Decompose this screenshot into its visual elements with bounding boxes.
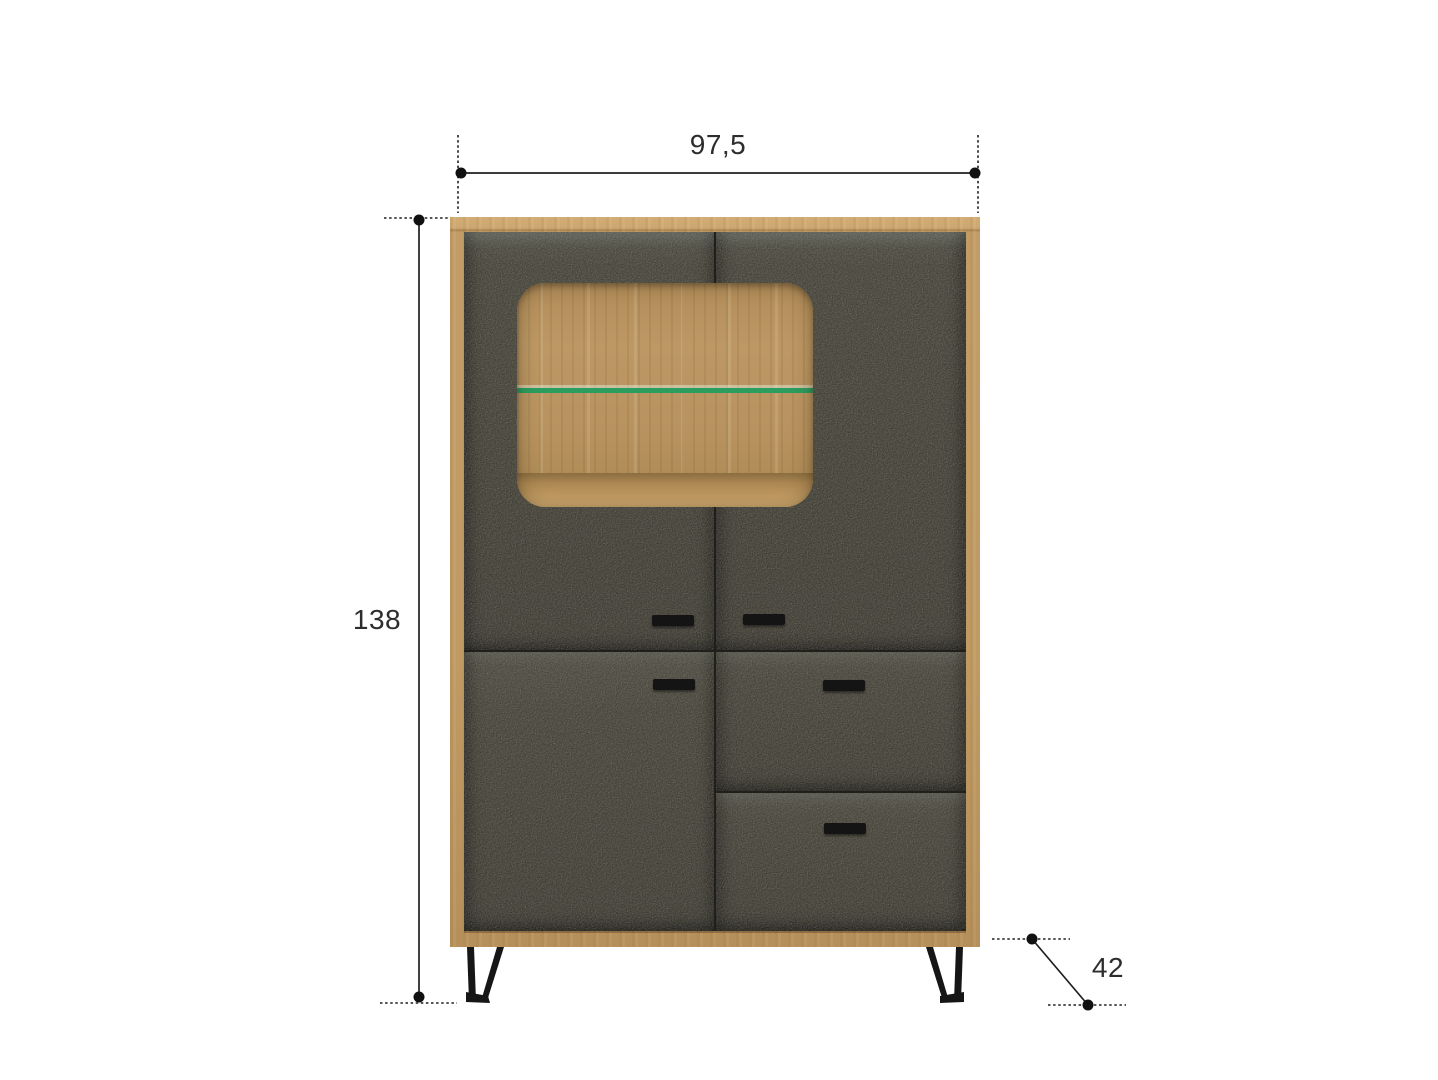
upholstered-front [464,232,966,931]
bottom-right-drawer [716,792,966,931]
glass-display-window [517,283,813,507]
glass-shelf [517,385,813,393]
right-drawer-seam [716,791,966,793]
right-metal-leg [926,947,964,1003]
bottom-left-door [464,651,716,931]
width-dimension-line [456,135,981,213]
top-left-door-handle [652,615,694,626]
display-cabinet [450,217,980,947]
left-metal-leg [466,947,504,1003]
product-dimension-diagram: 97,5 138 42 [0,0,1438,1080]
depth-dimension-line [992,934,1126,1011]
middle-horizontal-seam [464,650,966,652]
top-right-door-handle [743,614,785,625]
height-dimension-line [380,215,457,1004]
middle-right-drawer-handle [823,680,865,691]
bottom-right-drawer-handle [824,823,866,834]
window-floor [517,473,813,507]
bottom-left-door-handle [653,679,695,690]
middle-right-drawer [716,651,966,792]
